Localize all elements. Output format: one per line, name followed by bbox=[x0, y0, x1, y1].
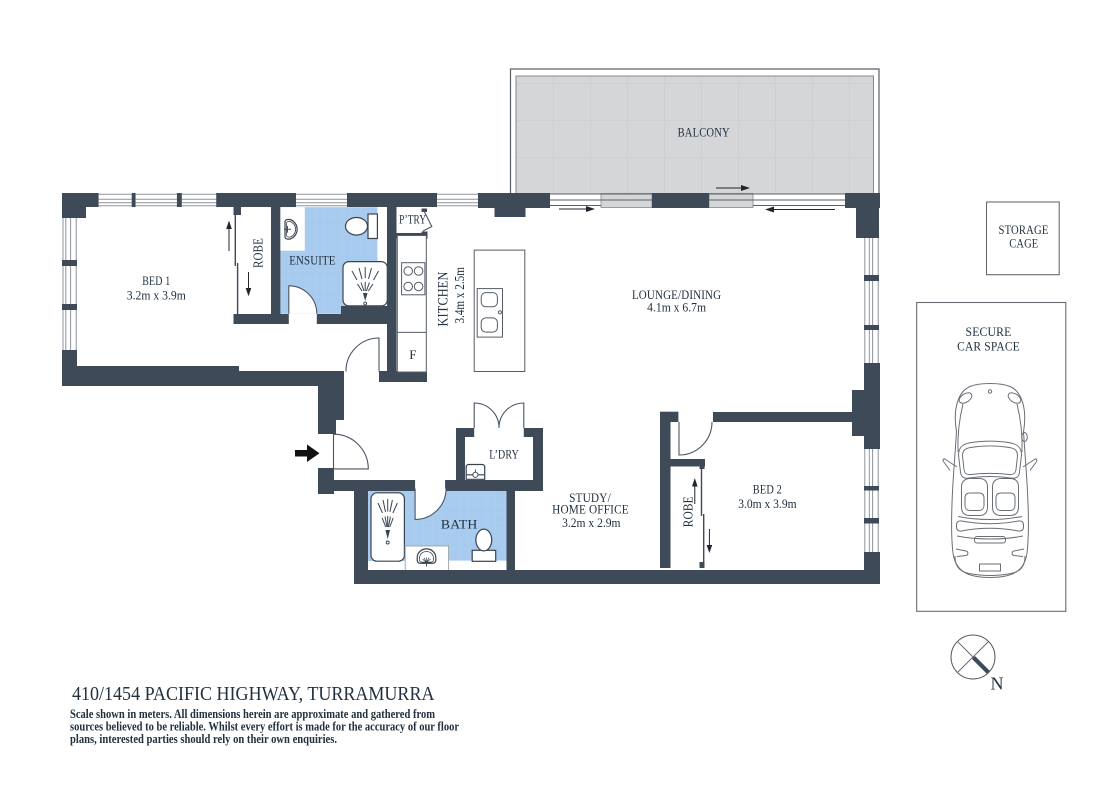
svg-text:3.2m x 3.9m: 3.2m x 3.9m bbox=[127, 287, 186, 302]
svg-text:3.2m x 2.9m: 3.2m x 2.9m bbox=[562, 515, 620, 530]
svg-text:BED 2: BED 2 bbox=[753, 482, 782, 497]
svg-text:3.0m x 3.9m: 3.0m x 3.9m bbox=[738, 496, 796, 511]
svg-text:plans, interested parties shou: plans, interested parties should rely on… bbox=[70, 732, 337, 746]
svg-text:SECURE: SECURE bbox=[966, 324, 1012, 339]
svg-text:ROBE: ROBE bbox=[682, 496, 697, 527]
svg-text:ENSUITE: ENSUITE bbox=[289, 252, 335, 267]
svg-text:BATH: BATH bbox=[441, 516, 478, 531]
svg-text:410/1454 PACIFIC HIGHWAY, TURR: 410/1454 PACIFIC HIGHWAY, TURRAMURRA bbox=[72, 683, 435, 705]
svg-text:KITCHEN: KITCHEN bbox=[436, 271, 452, 326]
svg-text:CAGE: CAGE bbox=[1009, 236, 1038, 251]
svg-text:N: N bbox=[991, 674, 1004, 694]
svg-text:BALCONY: BALCONY bbox=[678, 125, 731, 140]
svg-text:CAR SPACE: CAR SPACE bbox=[957, 339, 1020, 354]
svg-text:L’DRY: L’DRY bbox=[489, 447, 519, 462]
svg-text:ROBE: ROBE bbox=[252, 238, 267, 268]
svg-text:BED 1: BED 1 bbox=[142, 273, 170, 288]
svg-text:4.1m x 6.7m: 4.1m x 6.7m bbox=[647, 299, 706, 314]
svg-text:P’TRY: P’TRY bbox=[399, 212, 426, 227]
svg-text:F: F bbox=[409, 347, 416, 362]
svg-text:3.4m x 2.5m: 3.4m x 2.5m bbox=[452, 267, 467, 324]
